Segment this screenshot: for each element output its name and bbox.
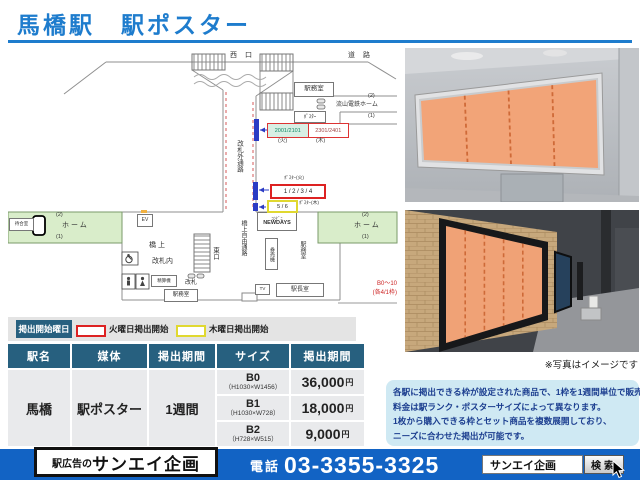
label-left-platform: ホーム <box>62 222 89 229</box>
upper-poster-frames: 2001/2101 2301/2401 <box>267 123 349 138</box>
cell-size-b1: B1 （H1030×W728） <box>217 396 289 420</box>
page-title: 馬橋駅 駅ポスター <box>17 6 251 40</box>
train-car-icon <box>33 216 45 235</box>
label-poster-tag: ﾎﾟｽﾀｰ <box>294 111 326 123</box>
phone-number: 03-3355-3325 <box>284 452 439 479</box>
map-note-line2: (各4/1枠) <box>351 289 397 298</box>
cell-price-b0: 36,000円 <box>291 370 364 394</box>
label-track2-top: (2) <box>368 94 375 100</box>
map-note-line1: B0～10 <box>351 280 397 289</box>
col-header-station: 駅名 <box>8 344 70 368</box>
station-map: 西 口 道 路 駅務室 (2) 流山電鉄ホーム (1) ﾎﾟｽﾀｰ 2001/2… <box>8 46 398 318</box>
photo-station-wall-poster <box>405 48 639 202</box>
info-line-2: 料金は駅ランク・ポスターサイズによって異なります。 <box>393 402 633 414</box>
col-header-period: 掲出期間 <box>149 344 215 368</box>
legend-thursday-label: 木曜日掲出開始 <box>209 325 269 334</box>
label-track1-top: (1) <box>368 114 375 120</box>
cell-price-b1: 18,000円 <box>291 396 364 420</box>
search-input[interactable] <box>482 455 583 474</box>
logo-prefix: 駅広告の <box>52 455 92 470</box>
label-poster-tue: ﾎﾟｽﾀｰ(火) <box>284 177 304 182</box>
label-tv: TV <box>255 284 270 295</box>
legend-swatch-tuesday <box>76 325 106 337</box>
label-office-side: 駅務室 <box>299 241 305 267</box>
secondary-display <box>555 252 571 312</box>
info-line-3: 1枚から購入できる枠とセット商品を複数展開しており、 <box>393 416 633 428</box>
floor-sign <box>589 296 598 309</box>
legend-title: 掲出開始曜日 <box>16 320 72 338</box>
cell-station: 馬橋 <box>8 370 70 446</box>
label-outside-passage: 改札外通路 <box>235 140 242 190</box>
map-structure-lines <box>64 62 397 303</box>
label-station-office-top: 駅務室 <box>294 82 334 97</box>
label-right-track1: (1) <box>362 235 369 241</box>
label-gate: 改札 <box>185 280 197 286</box>
phone-label: 電話 <box>250 456 280 475</box>
label-east-exit: 東口 <box>211 247 218 267</box>
legend-tuesday-label: 火曜日掲出開始 <box>109 325 169 334</box>
label-master-room: 駅長室 <box>276 283 324 297</box>
col-header-media: 媒体 <box>72 344 147 368</box>
legend-bar: 掲出開始曜日 火曜日掲出開始 木曜日掲出開始 <box>8 317 356 341</box>
cell-size-b2: B2 （H728×W515） <box>217 422 289 446</box>
price-table: 駅名 媒体 掲出期間 サイズ 掲出期間 馬橋 駅ポスター 1週間 B0 （H10… <box>8 344 356 446</box>
cell-period: 1週間 <box>149 370 215 446</box>
legend-swatch-thursday <box>176 325 206 337</box>
cell-media: 駅ポスター <box>72 370 147 446</box>
product-info-box: 各駅に掲出できる枠が設定された商品で、1枠を1週間単位で販売。 料金は駅ランク・… <box>386 380 639 446</box>
map-note: B0～10 (各4/1枠) <box>351 280 397 298</box>
frame-numbers-2301: 2301/2401 <box>309 124 349 137</box>
tue-poster-frames: 1 / 2 / 3 / 4 <box>270 184 326 199</box>
cursor-arrow-icon <box>612 460 626 479</box>
label-thu-small: (木) <box>316 139 325 145</box>
label-ticket-machine: 券売機 <box>265 238 278 270</box>
label-left-track1: (1) <box>56 235 63 241</box>
label-bridge: 橋上 <box>149 242 167 249</box>
station-map-drawing <box>8 46 398 318</box>
footer-bar: 駅広告の サンエイ企画 電話 03-3355-3325 検索 <box>0 449 640 480</box>
label-convenience-store: ｺﾝﾋﾞﾆ NEWDAYS <box>257 212 297 231</box>
label-inside-gate: 改札内 <box>152 258 173 265</box>
info-line-1: 各駅に掲出できる枠が設定された商品で、1枠を1週間単位で販売。 <box>393 387 633 399</box>
label-west-exit: 西 口 <box>230 52 255 59</box>
cell-size-b0: B0 （H1030×W1456） <box>217 370 289 394</box>
company-logo: 駅広告の サンエイ企画 <box>34 447 218 477</box>
info-line-4: ニーズに合わせた掲出が可能です。 <box>393 431 633 443</box>
label-nagareyama-line: 流山電鉄ホーム <box>336 102 378 108</box>
photo-disclaimer: ※写真はイメージです <box>430 357 638 371</box>
label-fare-machine: 精算機 <box>151 275 177 287</box>
cell-price-b2: 9,000円 <box>291 422 364 446</box>
label-tue-small: (火) <box>278 139 287 145</box>
col-header-size: サイズ <box>217 344 289 368</box>
label-conv-name: NEWDAYS <box>263 221 291 227</box>
label-left-track2: (2) <box>56 213 63 219</box>
thu-poster-frames: 5 / 6 <box>267 200 298 213</box>
poster-location-markers <box>141 119 270 213</box>
label-road: 道 路 <box>348 52 373 59</box>
restroom-icons <box>122 252 149 289</box>
label-office-bottom: 駅務室 <box>164 289 198 302</box>
label-right-platform: ホーム <box>354 222 381 229</box>
title-underline <box>8 40 632 43</box>
label-right-track2: (2) <box>362 213 369 219</box>
col-header-price: 掲出期間 <box>291 344 364 368</box>
label-poster-thu: ﾎﾟｽﾀｰ(木) <box>299 202 319 207</box>
photo-brick-wall-poster <box>405 210 639 352</box>
frame-numbers-2001: 2001/2101 <box>268 124 309 137</box>
label-elevator: EV <box>137 214 153 227</box>
phone-block: 電話 03-3355-3325 <box>250 452 439 479</box>
label-free-passage: 橋上自由通路 <box>240 220 246 284</box>
label-waiting-room: 待合室 <box>9 218 34 231</box>
logo-name: サンエイ企画 <box>92 450 200 475</box>
flyer-page: 馬橋駅 駅ポスター <box>0 0 640 480</box>
